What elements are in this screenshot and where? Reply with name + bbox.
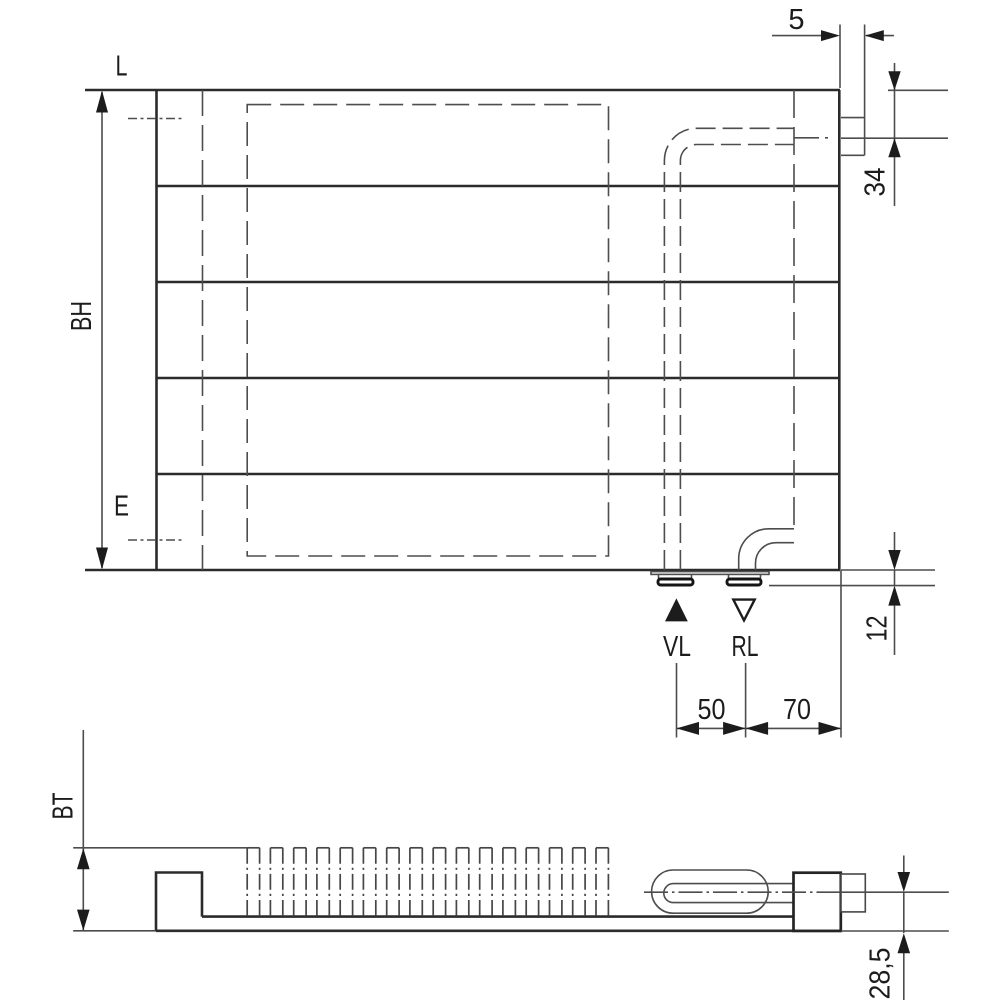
svg-text:12: 12 [862, 616, 894, 642]
svg-text:BH: BH [66, 301, 98, 331]
svg-text:34: 34 [860, 168, 892, 197]
svg-text:70: 70 [783, 694, 811, 726]
svg-text:RL: RL [732, 631, 759, 663]
svg-text:VL: VL [663, 631, 691, 663]
svg-text:28,5: 28,5 [865, 948, 897, 1000]
svg-text:5: 5 [788, 4, 804, 36]
svg-text:BT: BT [48, 792, 80, 819]
svg-text:50: 50 [698, 694, 726, 726]
svg-text:L: L [116, 51, 128, 83]
svg-text:E: E [114, 491, 129, 523]
